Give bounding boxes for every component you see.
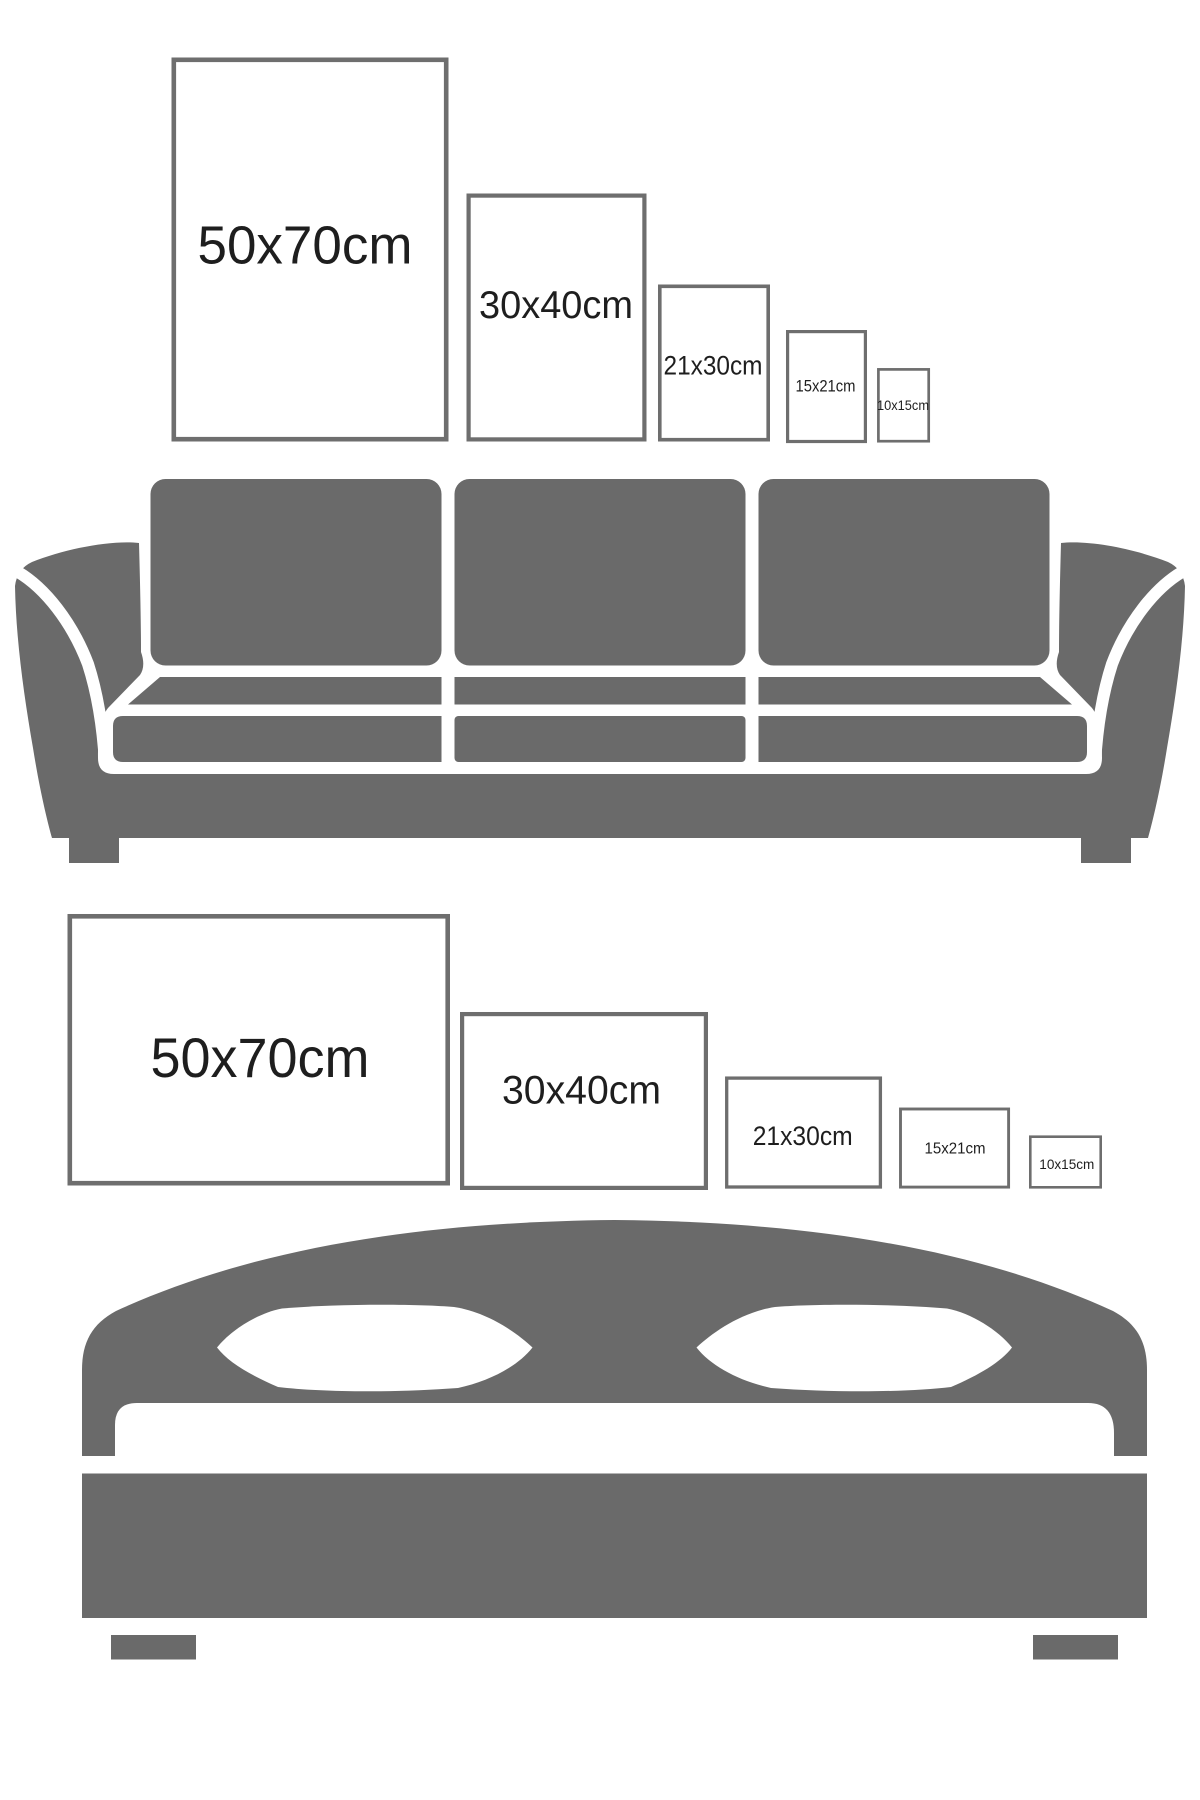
svg-text:15x21cm: 15x21cm [925, 1141, 986, 1158]
svg-text:30x40cm: 30x40cm [502, 1069, 661, 1113]
svg-text:30x40cm: 30x40cm [479, 284, 633, 327]
svg-text:15x21cm: 15x21cm [796, 378, 856, 396]
svg-text:21x30cm: 21x30cm [664, 351, 763, 381]
svg-text:50x70cm: 50x70cm [151, 1027, 370, 1089]
svg-text:10x15cm: 10x15cm [1039, 1157, 1094, 1172]
svg-text:10x15cm: 10x15cm [877, 398, 929, 413]
svg-text:21x30cm: 21x30cm [753, 1121, 853, 1151]
svg-text:50x70cm: 50x70cm [198, 216, 413, 276]
